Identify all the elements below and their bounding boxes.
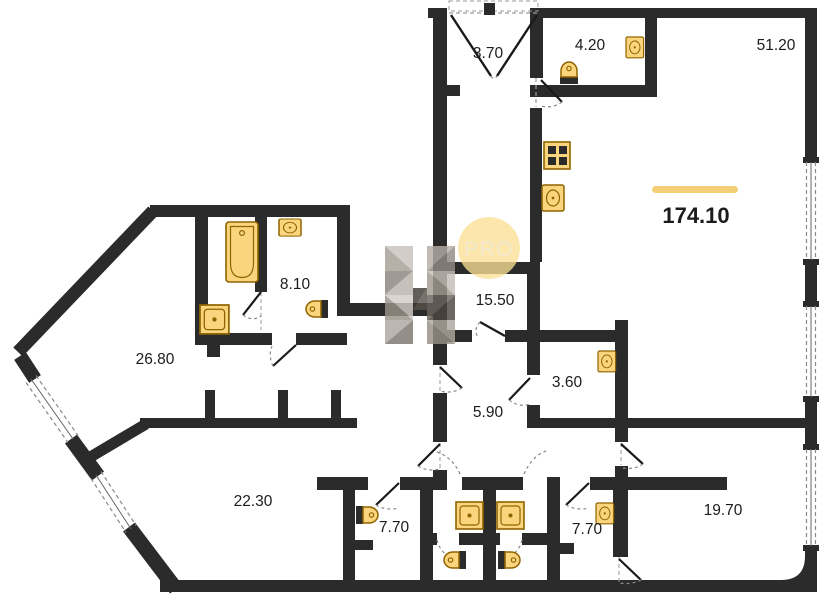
room-labels: 3.70 4.20 51.20 8.10 15.50 26.80 3.60 5.… <box>136 37 796 538</box>
total-area-accent-bar <box>652 186 738 193</box>
door-swing <box>509 378 530 405</box>
entry-door <box>449 1 538 79</box>
sink-icon <box>626 37 644 58</box>
room-label-bath-left: 7.70 <box>379 519 410 536</box>
toilet-icon <box>560 62 578 84</box>
door-swing <box>524 451 546 474</box>
shower-icon <box>200 305 229 334</box>
toilet-icon <box>498 551 520 569</box>
sink-icon <box>598 351 616 372</box>
watermark-h-icon <box>385 246 455 344</box>
floor-plan: PRO 174.10 3.70 4.20 51.20 8.10 15.50 26… <box>0 0 832 600</box>
door-swing <box>243 292 261 330</box>
watermark-logo: PRO <box>385 217 520 344</box>
door-swing <box>418 443 440 470</box>
door-swing <box>621 443 643 469</box>
room-label-room-left: 22.30 <box>234 493 273 510</box>
room-label-room-right: 19.70 <box>704 502 743 519</box>
floor-plan-drawing: PRO 174.10 3.70 4.20 51.20 8.10 15.50 26… <box>0 0 832 600</box>
door-swing <box>376 483 399 509</box>
room-label-bath: 8.10 <box>280 276 311 293</box>
shower-icon <box>456 502 483 529</box>
bathtub-icon <box>226 222 258 282</box>
stove-icon <box>544 142 570 169</box>
door-swing <box>476 322 505 337</box>
room-label-pantry: 3.60 <box>552 374 583 391</box>
room-label-wc-hall: 4.20 <box>575 37 606 54</box>
door-swing <box>566 483 589 509</box>
window <box>26 376 78 443</box>
room-label-corridor: 26.80 <box>136 351 175 368</box>
window <box>807 306 816 397</box>
toilet-icon <box>356 506 378 524</box>
sink-icon <box>542 185 564 211</box>
room-label-passage: 5.90 <box>473 404 504 421</box>
sink-icon <box>279 219 301 236</box>
window <box>807 162 816 260</box>
room-label-inner-hall: 15.50 <box>476 292 515 309</box>
toilet-icon <box>306 300 328 318</box>
window <box>91 472 136 533</box>
toilet-icon <box>444 551 466 569</box>
total-area: 174.10 <box>652 186 738 228</box>
window <box>807 449 816 546</box>
room-label-bath-right: 7.70 <box>572 521 603 538</box>
door-swing <box>270 345 296 366</box>
shower-icon <box>497 502 524 529</box>
room-label-hallway: 3.70 <box>473 45 504 62</box>
door-swing <box>619 557 641 584</box>
door-swing <box>440 366 462 392</box>
watermark-pro-label: PRO <box>464 238 514 261</box>
room-label-living: 51.20 <box>757 37 796 54</box>
total-area-label: 174.10 <box>662 203 729 228</box>
